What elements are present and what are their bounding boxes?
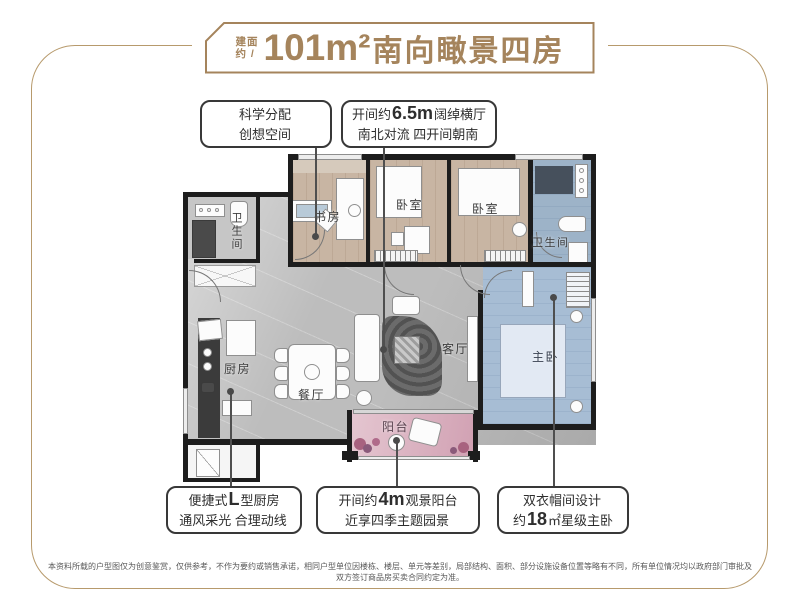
callout-kitchen: 便捷式L型厨房 通风采光 合理动线 [166,486,302,534]
room-label-living: 客厅 [442,340,469,357]
leader-dot [393,437,400,444]
title-area-value: 101m² [264,27,371,69]
room-label-bathroom-2: 卫生间 [532,234,570,250]
chair-icon [274,366,288,381]
leader-dot [380,346,387,353]
wall [183,192,290,197]
leader-line [315,142,317,238]
room-label-bedroom-1: 卧室 [396,196,423,213]
wall [288,262,596,267]
chair-icon [391,232,404,246]
chair-icon [336,348,350,363]
room-label-balcony: 阳台 [382,418,409,435]
wardrobe-icon [566,272,590,308]
wall [183,478,260,482]
stove-burner-icon [203,362,212,371]
laundry-cabinet-icon [196,449,220,477]
room-label-kitchen: 厨房 [224,360,251,377]
coffee-table-icon [394,336,420,364]
wall [366,154,370,265]
wall [447,154,451,265]
window [591,298,596,382]
wall [591,154,596,430]
armchair-icon [392,296,420,315]
title-area-prefix: 建面 约 / [236,36,259,60]
room-label-study: 书房 [314,208,341,225]
page-title: 南向瞰景四房 [372,26,564,70]
disclaimer-text: 本资料所载的户型图仅为创意鉴赏，仅供参考，不作为要约或销售承诺，相同户型单位因楼… [45,561,755,583]
title-banner: 建面 约 / 101m² 南向瞰景四房 [192,20,608,76]
window-balcony-door [353,409,474,414]
room-label-bathroom-1: 卫生间 [228,212,244,251]
sofa-icon [354,314,380,382]
window [515,154,583,160]
wall [194,259,260,263]
basin-dot-icon [207,208,211,212]
knob-icon [579,188,584,193]
stove-burner-icon [203,348,212,357]
shower-cabinet-icon [535,166,573,194]
callout-study: 科学分配 创想空间 [200,100,332,148]
nightstand-icon [570,310,583,323]
wall [256,445,260,482]
leader-dot [227,388,234,395]
leader-line [383,142,385,350]
leader-line [230,392,232,487]
fridge-icon [226,320,256,356]
chair-icon [336,384,350,399]
knob-icon [579,178,584,183]
plant-icon [372,438,380,446]
callout-hall: 开间约6.5m阔绰横厅 南北对流 四开间朝南 [341,100,497,148]
table-decor-icon [304,364,320,380]
shower-icon [192,220,216,258]
leader-dot [550,294,557,301]
leader-dot [312,233,319,240]
wall [478,424,596,430]
kitchen-cabinet-icon [197,319,223,341]
wall [288,154,293,266]
window [183,388,188,434]
closet-divider-icon [522,271,534,307]
leader-line [553,298,555,487]
nightstand-icon [570,400,583,413]
wall [256,197,260,263]
wardrobe-icon [374,250,418,262]
room-label-bedroom-2: 卧室 [472,200,499,217]
kettle-icon [201,382,215,393]
kitchen-sink-icon [222,400,252,416]
chair-icon [336,366,350,381]
callout-balcony: 开间约4m观景阳台 近享四季主题园景 [316,486,480,534]
wall [183,439,351,445]
basin-dot-icon [215,208,219,212]
wall [342,451,358,460]
study-cabinet-icon [293,159,366,173]
clock-icon [348,204,361,217]
room-label-dining: 餐厅 [298,386,325,403]
basin-dot-icon [199,208,203,212]
balcony-railing [358,456,470,460]
side-table-icon [356,390,372,406]
wall [478,290,483,430]
plant-icon [450,447,457,454]
plant-icon [363,444,372,453]
title-text: 建面 约 / 101m² 南向瞰景四房 [205,22,595,74]
callout-master: 双衣帽间设计 约18㎡星级主卧 [497,486,629,534]
wardrobe-icon [484,250,526,262]
chair-icon [274,384,288,399]
leader-line [396,440,398,487]
knob-icon [579,168,584,173]
window [298,154,362,160]
chair-icon [274,348,288,363]
side-table-icon [512,222,527,237]
toilet-icon [558,216,586,232]
